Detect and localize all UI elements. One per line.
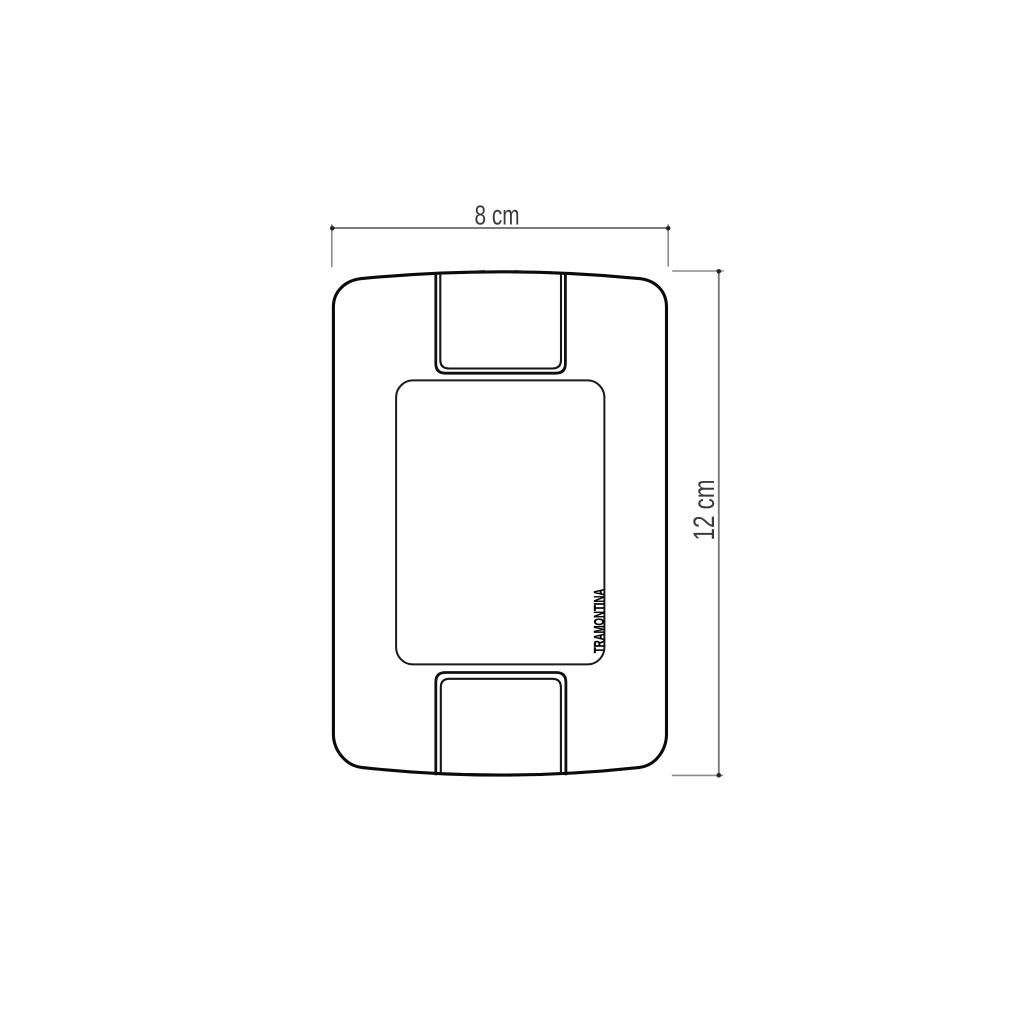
svg-text:12 cm: 12 cm (688, 480, 721, 541)
svg-text:TRAMONTINA: TRAMONTINA (591, 589, 608, 654)
svg-text:8 cm: 8 cm (475, 200, 520, 231)
